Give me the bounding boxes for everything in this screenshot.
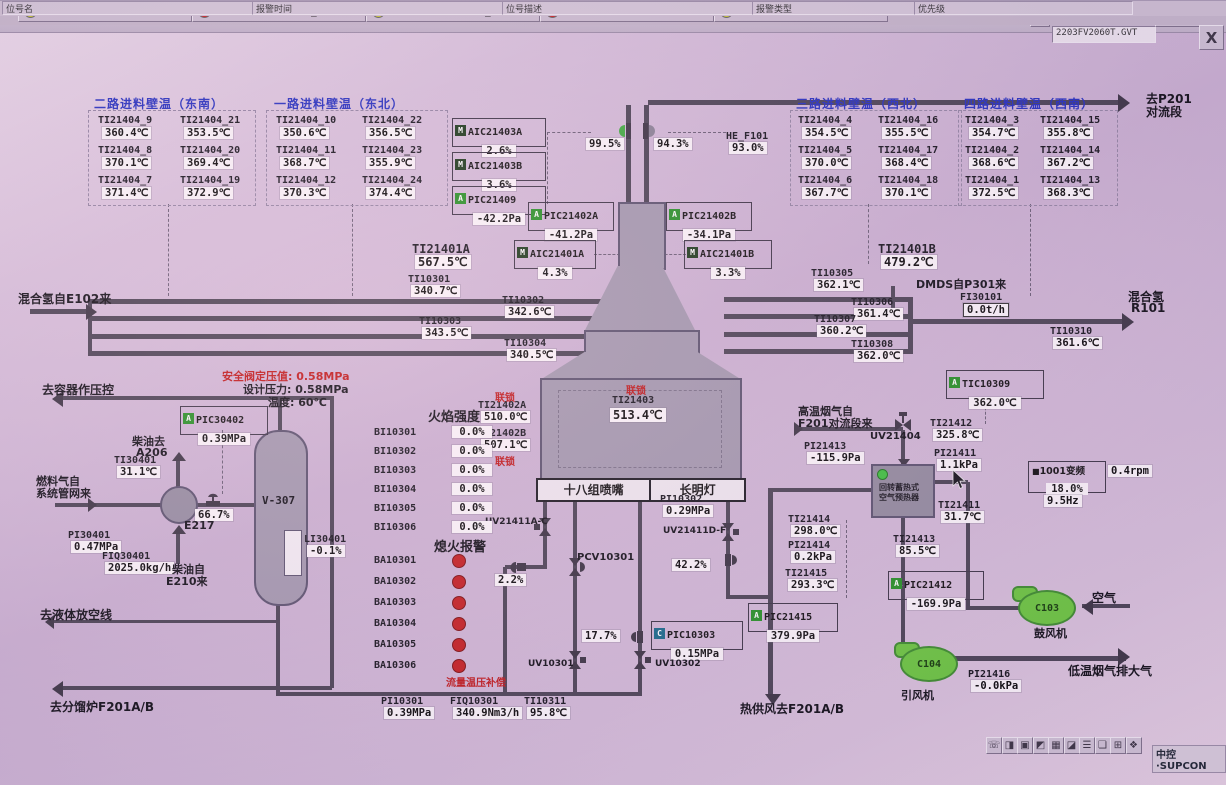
value-TI30401[interactable]: 31.1℃ (117, 466, 160, 478)
pic10303-valve[interactable] (629, 626, 651, 648)
table-cell-tag: TI21404_16 (878, 115, 938, 126)
value-TI10302[interactable]: 342.6℃ (505, 306, 554, 318)
mode-chip-A: A (891, 578, 902, 589)
pipe (176, 532, 180, 564)
label: 联锁 (495, 389, 515, 404)
instrument-tag: PIC21402A (544, 211, 598, 222)
instrument-tag: AIC21401A (530, 249, 584, 260)
dashed-connector-line (594, 254, 620, 255)
flow-arrowhead (172, 452, 186, 461)
flameout-alarm-dot-BA10303[interactable] (452, 596, 466, 610)
instrument-tag: PIC30402 (196, 415, 244, 426)
label: 鼓风机 (1034, 625, 1067, 641)
log-icon[interactable]: ❏ (1095, 737, 1111, 754)
pipe (908, 297, 913, 354)
table-cell-value[interactable]: 355.5℃ (882, 127, 931, 139)
label: UV21404 (870, 431, 921, 442)
calendar-icon[interactable]: ▦ (1048, 737, 1064, 754)
tag-TI10305: TI10305 (811, 268, 853, 279)
tag-FIQ30401: FIQ30401 (102, 551, 150, 562)
label: UV10301 (528, 659, 574, 669)
table-cell-tag: TI21404_24 (362, 175, 422, 186)
value-TI10303[interactable]: 343.5℃ (422, 327, 471, 339)
instrument-value[interactable]: 379.9Pa (767, 630, 819, 642)
value-TI10301[interactable]: 340.7℃ (411, 285, 460, 297)
table-cell-tag: TI21404_8 (98, 145, 152, 156)
mode-chip-A: A (183, 413, 194, 424)
value-PI21413[interactable]: -115.9Pa (807, 452, 864, 464)
label: 混合氢自E102来 (18, 290, 111, 307)
tag-FI30101: FI30101 (960, 292, 1002, 303)
furnace-tag: TI21403 (612, 395, 654, 406)
dashed-connector-line (547, 132, 548, 204)
label: 温度: 60℃ (268, 394, 327, 410)
tag-PI21411: PI21411 (934, 448, 976, 459)
furnace-roof (540, 352, 742, 380)
table-cell-value[interactable]: 354.5℃ (802, 127, 851, 139)
mode-chip-M: M (687, 247, 698, 258)
tag-LI30401: LI30401 (304, 534, 346, 545)
instrument-tag: AIC21401B (700, 249, 754, 260)
label: DMDS自P301来 (916, 276, 1006, 292)
label: E210来 (166, 573, 207, 589)
dashed-connector-line (1030, 204, 1031, 296)
value-TI10305[interactable]: 362.1℃ (814, 279, 863, 291)
tag-BA10306: BA10306 (374, 660, 416, 671)
flameout-alarm-title: 熄火报警 (434, 536, 486, 555)
pilot-valve-output[interactable]: 42.2% (672, 559, 710, 571)
tag-BI10304: BI10304 (374, 484, 416, 495)
label: 系统管网来 (36, 485, 91, 501)
flameout-alarm-dot-BA10305[interactable] (452, 638, 466, 652)
preheater-label-2: 空气预热器 (879, 492, 919, 503)
table-cell-tag: TI21404_5 (798, 145, 852, 156)
label: 对流段 (1146, 103, 1182, 120)
table-cell-tag: TI21404_10 (276, 115, 336, 126)
value-BI10304[interactable]: 0.0% (452, 483, 492, 495)
tag-BI10302: BI10302 (374, 446, 416, 457)
table-cell-value[interactable]: 370.0℃ (802, 157, 851, 169)
dashed-connector-line (668, 132, 726, 133)
pipe (55, 503, 255, 507)
monitor-icon[interactable]: ▣ (1017, 737, 1033, 754)
tag-BA10304: BA10304 (374, 618, 416, 629)
instrument-value[interactable]: -169.9Pa (907, 598, 966, 610)
value-HE_F101[interactable]: 93.0% (729, 142, 767, 154)
value-LI30401[interactable]: -0.1% (307, 545, 345, 557)
table-cell-tag: TI21404_3 (965, 115, 1019, 126)
tag-PI10302: PI10302 (660, 494, 702, 505)
tag-TI10306: TI10306 (851, 297, 893, 308)
key-icon[interactable]: ◨ (1002, 737, 1018, 754)
tag-BI10301: BI10301 (374, 427, 416, 438)
phone-icon[interactable]: ☏ (986, 737, 1002, 754)
table-cell-tag: TI21404_17 (878, 145, 938, 156)
value-TI10306[interactable]: 361.4℃ (854, 308, 903, 320)
tag-TI21412: TI21412 (930, 418, 972, 429)
label: UV21411A-C (485, 517, 548, 527)
label: UV10302 (655, 659, 701, 669)
pipe (908, 319, 1128, 324)
label: PCV10301 (577, 552, 634, 563)
instrument-tag: TIC10309 (962, 379, 1010, 390)
tag-BA10303: BA10303 (374, 597, 416, 608)
supcon-logo: 中控·SUPCON (1152, 745, 1226, 773)
dcs-screen: 2203FV2060T.GVT ▤ 仪表面板 ▾ X 就绪 [域: DA0[操作… (0, 0, 1226, 785)
tag-BA10305: BA10305 (374, 639, 416, 650)
pipe (30, 309, 90, 314)
help-icon[interactable]: ❖ (1126, 737, 1142, 754)
stack-damper-a-output[interactable]: 99.5% (586, 138, 624, 150)
table-cell-value[interactable]: 368.7℃ (280, 157, 329, 169)
mode-chip-C: C (654, 628, 665, 639)
table-cell-value[interactable]: 350.6℃ (280, 127, 329, 139)
instrument-box-PIC21412[interactable]: APIC21412-169.9Pa (888, 571, 984, 600)
table-cell-tag: TI21404_13 (1040, 175, 1100, 186)
tag-BI10306: BI10306 (374, 522, 416, 533)
label: 热供风去F201A/B (740, 700, 844, 717)
tag-TI10302: TI10302 (502, 295, 544, 306)
mode-chip-M: M (455, 159, 466, 170)
alarm-field-3: 报警类型 (752, 1, 917, 15)
table-cell-tag: TI21404_1 (965, 175, 1019, 186)
feed-table-title: 四路进料壁温（西南） (964, 95, 1094, 112)
instrument-box-PIC30402[interactable]: APIC304020.39MPa (180, 406, 268, 435)
vessel-label: V-307 (262, 494, 295, 507)
table-cell-value[interactable]: 355.8℃ (1044, 127, 1093, 139)
table-cell-tag: TI21404_20 (180, 145, 240, 156)
tag-PI21416: PI21416 (968, 669, 1010, 680)
dashed-connector-line (868, 204, 869, 264)
tag-BI10303: BI10303 (374, 465, 416, 476)
flow-arrowhead (1118, 94, 1130, 112)
pipe (950, 656, 1126, 661)
value-PI10301[interactable]: 0.39MPa (384, 707, 434, 719)
instrument-box-PIC10303[interactable]: CPIC103030.15MPa (651, 621, 743, 650)
instrument-value[interactable]: 3.3% (711, 267, 744, 279)
pipe (60, 686, 332, 690)
tag-TI21411: TI21411 (938, 500, 980, 511)
tag-TI10307: TI10307 (814, 314, 856, 325)
tag-BA10301: BA10301 (374, 555, 416, 566)
table-cell-value[interactable]: 354.7℃ (969, 127, 1018, 139)
tag-TI21414: TI21414 (788, 514, 830, 525)
label: 空气 (1092, 589, 1116, 606)
table-cell-tag: TI21404_18 (878, 175, 938, 186)
tag-TI21413: TI21413 (893, 534, 935, 545)
instrument-value[interactable]: 0.39MPa (198, 433, 250, 445)
feed-table-title: 一路进料壁温（东北） (274, 95, 404, 112)
mode-chip-A: A (669, 209, 680, 220)
table-cell-tag: TI21404_19 (180, 175, 240, 186)
vfd-label: 1001变频 (1040, 466, 1085, 477)
pilot-control-valve[interactable] (717, 549, 739, 571)
table-cell-tag: TI21404_23 (362, 145, 422, 156)
pipe (276, 692, 334, 696)
burner-valve-output[interactable]: 2.2% (495, 574, 526, 586)
value-TI21401A[interactable]: 567.5℃ (415, 255, 471, 269)
dashed-connector-line (547, 132, 591, 133)
mode-chip-A: A (531, 209, 542, 220)
table-cell-value[interactable]: 372.5℃ (969, 187, 1018, 199)
pipe (768, 488, 773, 698)
table-cell-value[interactable]: 367.2℃ (1044, 157, 1093, 169)
value-TI10304[interactable]: 340.5℃ (507, 349, 556, 361)
mode-chip-M: M (517, 247, 528, 258)
table-cell-tag: TI21404_6 (798, 175, 852, 186)
value-BI10306[interactable]: 0.0% (452, 521, 492, 533)
flow-file-input[interactable]: 2203FV2060T.GVT (1052, 26, 1156, 43)
label: A206 (136, 446, 167, 459)
instrument-box-AIC21403A[interactable]: MAIC21403A2.6% (452, 118, 546, 147)
label: 去分馏炉F201A/B (50, 698, 154, 715)
instrument-tag: PIC21412 (904, 580, 952, 591)
table-cell-tag: TI21404_9 (98, 115, 152, 126)
label: 低温烟气排大气 (1068, 662, 1152, 679)
mode-chip-A: A (949, 377, 960, 388)
value-BI10302[interactable]: 0.0% (452, 445, 492, 457)
label: 去容器作压控 (42, 381, 114, 398)
tag-PI30401: PI30401 (68, 530, 110, 541)
flameout-alarm-dot-BA10301[interactable] (452, 554, 466, 568)
tag-TI10303: TI10303 (419, 316, 461, 327)
vessel-level-strip (284, 530, 302, 576)
burner-box[interactable]: 十八组喷嘴长明灯 (536, 478, 746, 502)
vfd-rpm[interactable]: 0.4rpm (1108, 465, 1152, 477)
pipe (772, 488, 873, 492)
value-PI21416[interactable]: -0.0kPa (971, 680, 1021, 692)
instrument-box-PIC21415[interactable]: APIC21415379.9Pa (748, 603, 838, 632)
vfd-square-icon: ■ (1032, 467, 1040, 476)
value-TI21414[interactable]: 298.0℃ (791, 525, 840, 537)
instrument-tag: PIC21402B (682, 211, 736, 222)
table-cell-value[interactable]: 371.4℃ (102, 187, 151, 199)
instrument-value[interactable]: 4.3% (538, 267, 571, 279)
label: 去液体放空线 (40, 606, 112, 623)
label: 引风机 (901, 687, 934, 703)
table-cell-tag: TI21404_4 (798, 115, 852, 126)
tag-PI21414: PI21414 (788, 540, 830, 551)
value-TI10310[interactable]: 361.6℃ (1053, 337, 1102, 349)
flow-arrowhead (1122, 313, 1134, 331)
vfd-hz[interactable]: 9.5Hz (1044, 495, 1082, 507)
feed-table-title: 二路进料壁温（东南） (94, 95, 224, 112)
table-cell-tag: TI21404_11 (276, 145, 336, 156)
uv10302-valve[interactable] (629, 649, 651, 671)
tag-TI10311: TI10311 (524, 696, 566, 707)
tag-PI21413: PI21413 (804, 441, 846, 452)
table-cell-value[interactable]: 360.4℃ (102, 127, 151, 139)
table-cell-value[interactable]: 353.5℃ (184, 127, 233, 139)
value-BI10305[interactable]: 0.0% (452, 502, 492, 514)
burner-group-label: 十八组喷嘴 (538, 480, 649, 500)
instrument-box-TIC10309[interactable]: ATIC10309362.0℃ (946, 370, 1044, 399)
mode-chip-M: M (455, 125, 466, 136)
table-cell-value[interactable]: 356.5℃ (366, 127, 415, 139)
tag-BA10302: BA10302 (374, 576, 416, 587)
vfd-box[interactable]: ■1001变频18.0% (1028, 461, 1106, 493)
instrument-box-PIC21402A[interactable]: APIC21402A-41.2Pa (528, 202, 614, 231)
table-cell-value[interactable]: 367.7℃ (802, 187, 851, 199)
value-TI21411[interactable]: 31.7℃ (941, 511, 984, 523)
flow-arrowhead (52, 681, 63, 697)
instrument-value[interactable]: -42.2Pa (473, 213, 525, 225)
tag-HE_F101: HE_F101 (726, 131, 768, 142)
flame-intensity-title: 火焰强度 (428, 406, 480, 425)
tag-TI10310: TI10310 (1050, 326, 1092, 337)
value-TI10311[interactable]: 95.8℃ (527, 707, 570, 719)
flameout-alarm-dot-BA10302[interactable] (452, 575, 466, 589)
tag-TI21401A: TI21401A (412, 242, 470, 256)
mouse-cursor-icon (952, 470, 968, 490)
tag-TI21401B: TI21401B (878, 242, 936, 256)
label: 流量温压补偿 (446, 674, 506, 689)
value-FIQ10301[interactable]: 340.9Nm3/h (453, 707, 522, 719)
value-TI21415[interactable]: 293.3℃ (788, 579, 837, 591)
table-cell-value[interactable]: 368.6℃ (969, 157, 1018, 169)
table-cell-tag: TI21404_15 (1040, 115, 1100, 126)
label: UV21411D-F (663, 526, 726, 536)
tag-TI10301: TI10301 (408, 274, 450, 285)
furnace-stack-neck (618, 202, 666, 270)
feed-table-title: 三路进料壁温（西北） (796, 95, 926, 112)
value-FI30101[interactable]: 0.0t/h (963, 303, 1009, 317)
flameout-alarm-dot-BA10304[interactable] (452, 617, 466, 631)
table-cell-value[interactable]: 369.4℃ (184, 157, 233, 169)
value-FIQ30401[interactable]: 2025.0kg/h (105, 562, 174, 574)
tag-TI21415: TI21415 (785, 568, 827, 579)
mode-chip-A: A (455, 193, 466, 204)
tag-BI10305: BI10305 (374, 503, 416, 514)
fan-c104[interactable]: C104 (900, 646, 958, 682)
value-TI10307[interactable]: 360.2℃ (817, 325, 866, 337)
instrument-value[interactable]: 362.0℃ (969, 397, 1020, 409)
value-TI21413[interactable]: 85.5℃ (896, 545, 939, 557)
instrument-tag: PIC21415 (764, 612, 812, 623)
alarm-list-icon[interactable]: ☰ (1079, 737, 1095, 754)
alarm-field-1: 报警时间 (252, 1, 505, 15)
table-cell-tag: TI21404_7 (98, 175, 152, 186)
table-cell-value[interactable]: 372.9℃ (184, 187, 233, 199)
table-cell-tag: TI21404_12 (276, 175, 336, 186)
tag-PI10301: PI10301 (381, 696, 423, 707)
label: E217 (184, 519, 214, 532)
close-button[interactable]: X (1199, 25, 1224, 50)
value-BI10301[interactable]: 0.0% (452, 426, 492, 438)
table-cell-value[interactable]: 370.3℃ (280, 187, 329, 199)
value-PI10302[interactable]: 0.29MPa (663, 505, 713, 517)
instrument-tag: PIC21409 (468, 195, 516, 206)
tag-TI10308: TI10308 (851, 339, 893, 350)
alarm-field-0: 位号名 (2, 1, 255, 15)
vfd-percent[interactable]: 18.0% (1046, 483, 1088, 495)
value-PI21414[interactable]: 0.2kPa (791, 551, 835, 563)
blower-c103[interactable]: C103 (1018, 590, 1076, 626)
preheater-run-light (877, 469, 888, 480)
value-BI10303[interactable]: 0.0% (452, 464, 492, 476)
value-TI10308[interactable]: 362.0℃ (854, 350, 903, 362)
value-TI21412[interactable]: 325.8℃ (933, 429, 982, 441)
stack-damper-b-output[interactable]: 94.3% (654, 138, 692, 150)
table-cell-value[interactable]: 370.1℃ (882, 187, 931, 199)
dashed-connector-line (168, 204, 169, 296)
instrument-box-AIC21401B[interactable]: MAIC21401B3.3% (684, 240, 772, 269)
value-TI21402A[interactable]: 510.0℃ (481, 411, 530, 423)
table-cell-value[interactable]: 370.1℃ (102, 157, 151, 169)
label: R101 (1131, 301, 1165, 315)
dashed-connector-line (352, 204, 353, 296)
vessel-v307[interactable] (254, 430, 308, 606)
table-cell-tag: TI21404_2 (965, 145, 1019, 156)
tag-FIQ10301: FIQ10301 (450, 696, 498, 707)
table-cell-tag: TI21404_14 (1040, 145, 1100, 156)
alarm-field-4: 优先级 (914, 1, 1133, 15)
table-cell-value[interactable]: 374.4℃ (366, 187, 415, 199)
table-cell-tag: TI21404_21 (180, 115, 240, 126)
instrument-tag: AIC21403A (468, 127, 522, 138)
save-icon[interactable]: ◩ (1033, 737, 1049, 754)
label: 联锁 (495, 453, 515, 468)
alarm-field-2: 位号描述 (502, 1, 755, 15)
tag-TI10304: TI10304 (504, 338, 546, 349)
instrument-box-AIC21401A[interactable]: MAIC21401A4.3% (514, 240, 596, 269)
table-cell-tag: TI21404_22 (362, 115, 422, 126)
alarm-bell-icon[interactable]: ◪ (1064, 737, 1080, 754)
instrument-tag: AIC21403B (468, 161, 522, 172)
value-TI21401B[interactable]: 479.2℃ (881, 255, 937, 269)
furnace-value[interactable]: 513.4℃ (610, 408, 666, 422)
mode-chip-A: A (751, 610, 762, 621)
table-cell-value[interactable]: 368.4℃ (882, 157, 931, 169)
table-cell-value[interactable]: 368.3℃ (1044, 187, 1093, 199)
table-cell-value[interactable]: 355.9℃ (366, 157, 415, 169)
instrument-tag: PIC10303 (667, 630, 715, 641)
instrument-box-PIC21402B[interactable]: APIC21402B-34.1Pa (666, 202, 752, 231)
pipe (726, 595, 772, 599)
pic10303-valve-output[interactable]: 17.7% (582, 630, 620, 642)
instrument-box-AIC21403B[interactable]: MAIC21403B3.6% (452, 152, 546, 181)
dashed-connector-line (846, 520, 847, 598)
label: F201对流段来 (798, 415, 872, 431)
pipe (276, 600, 280, 692)
flameout-alarm-dot-BA10306[interactable] (452, 659, 466, 673)
tiles-icon[interactable]: ⊞ (1110, 737, 1126, 754)
